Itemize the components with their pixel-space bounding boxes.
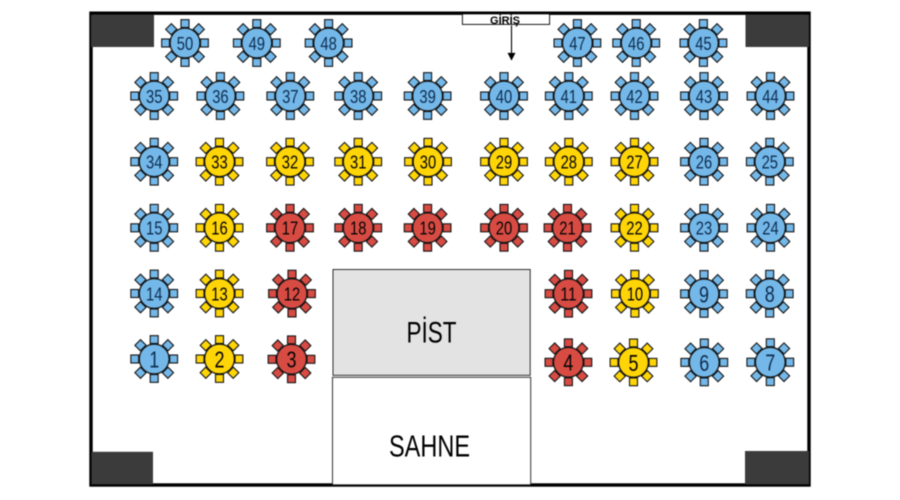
svg-text:GİRİŞ: GİRİŞ xyxy=(490,14,520,27)
svg-text:11: 11 xyxy=(560,284,576,305)
svg-text:28: 28 xyxy=(561,152,577,173)
svg-text:15: 15 xyxy=(146,218,162,239)
svg-text:19: 19 xyxy=(419,218,435,239)
svg-text:18: 18 xyxy=(350,218,366,239)
svg-text:38: 38 xyxy=(350,86,366,107)
svg-text:49: 49 xyxy=(249,33,265,54)
svg-text:47: 47 xyxy=(569,33,585,54)
svg-text:4: 4 xyxy=(563,350,573,376)
svg-text:50: 50 xyxy=(177,33,193,54)
svg-text:25: 25 xyxy=(762,152,778,173)
svg-text:23: 23 xyxy=(696,218,712,239)
svg-text:16: 16 xyxy=(211,218,227,239)
svg-text:35: 35 xyxy=(146,86,162,107)
svg-text:37: 37 xyxy=(282,86,298,107)
svg-text:42: 42 xyxy=(626,86,642,107)
svg-text:40: 40 xyxy=(496,86,512,107)
svg-text:9: 9 xyxy=(699,281,709,307)
svg-text:13: 13 xyxy=(211,283,227,304)
svg-text:6: 6 xyxy=(699,350,709,376)
svg-text:41: 41 xyxy=(561,86,577,107)
svg-text:17: 17 xyxy=(282,218,298,239)
svg-text:43: 43 xyxy=(696,86,712,107)
svg-text:46: 46 xyxy=(628,33,644,54)
svg-text:30: 30 xyxy=(420,152,436,173)
svg-text:5: 5 xyxy=(629,350,639,376)
svg-text:8: 8 xyxy=(765,281,775,307)
svg-text:39: 39 xyxy=(419,86,435,107)
svg-text:32: 32 xyxy=(282,152,298,173)
svg-text:14: 14 xyxy=(146,283,162,304)
svg-text:3: 3 xyxy=(287,347,297,373)
svg-text:20: 20 xyxy=(496,218,512,239)
svg-text:33: 33 xyxy=(211,152,227,173)
svg-text:24: 24 xyxy=(762,218,778,239)
svg-text:26: 26 xyxy=(696,152,712,173)
svg-text:22: 22 xyxy=(626,218,642,239)
svg-text:7: 7 xyxy=(765,350,775,376)
svg-text:27: 27 xyxy=(626,152,642,173)
svg-text:48: 48 xyxy=(320,33,336,54)
svg-text:36: 36 xyxy=(212,86,228,107)
svg-text:21: 21 xyxy=(559,218,575,239)
svg-text:12: 12 xyxy=(284,284,300,305)
svg-text:29: 29 xyxy=(496,152,512,173)
svg-text:2: 2 xyxy=(215,346,225,372)
svg-text:31: 31 xyxy=(350,152,366,173)
svg-text:44: 44 xyxy=(762,86,778,107)
svg-text:SAHNE: SAHNE xyxy=(389,429,470,464)
svg-text:45: 45 xyxy=(695,33,711,54)
svg-text:PİST: PİST xyxy=(407,317,457,350)
svg-text:34: 34 xyxy=(146,152,162,173)
svg-text:10: 10 xyxy=(627,284,643,305)
svg-text:1: 1 xyxy=(149,346,159,372)
